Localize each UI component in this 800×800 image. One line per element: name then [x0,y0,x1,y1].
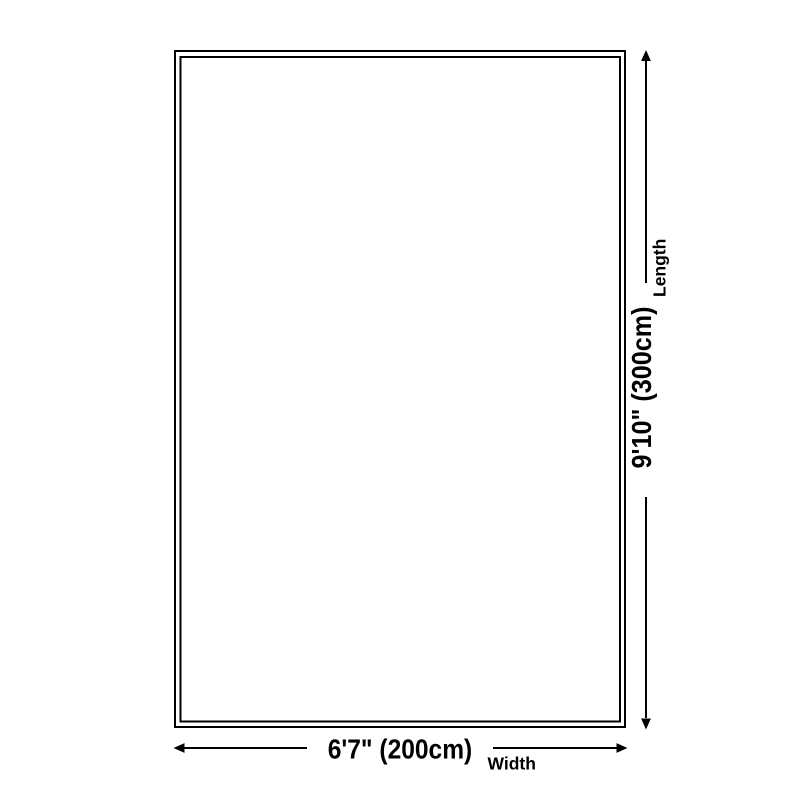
svg-text:6'7" (200cm): 6'7" (200cm) [328,734,473,765]
svg-text:9'10" (300cm): 9'10" (300cm) [626,307,657,469]
svg-text:Length: Length [650,239,670,297]
svg-text:Width: Width [488,754,536,774]
